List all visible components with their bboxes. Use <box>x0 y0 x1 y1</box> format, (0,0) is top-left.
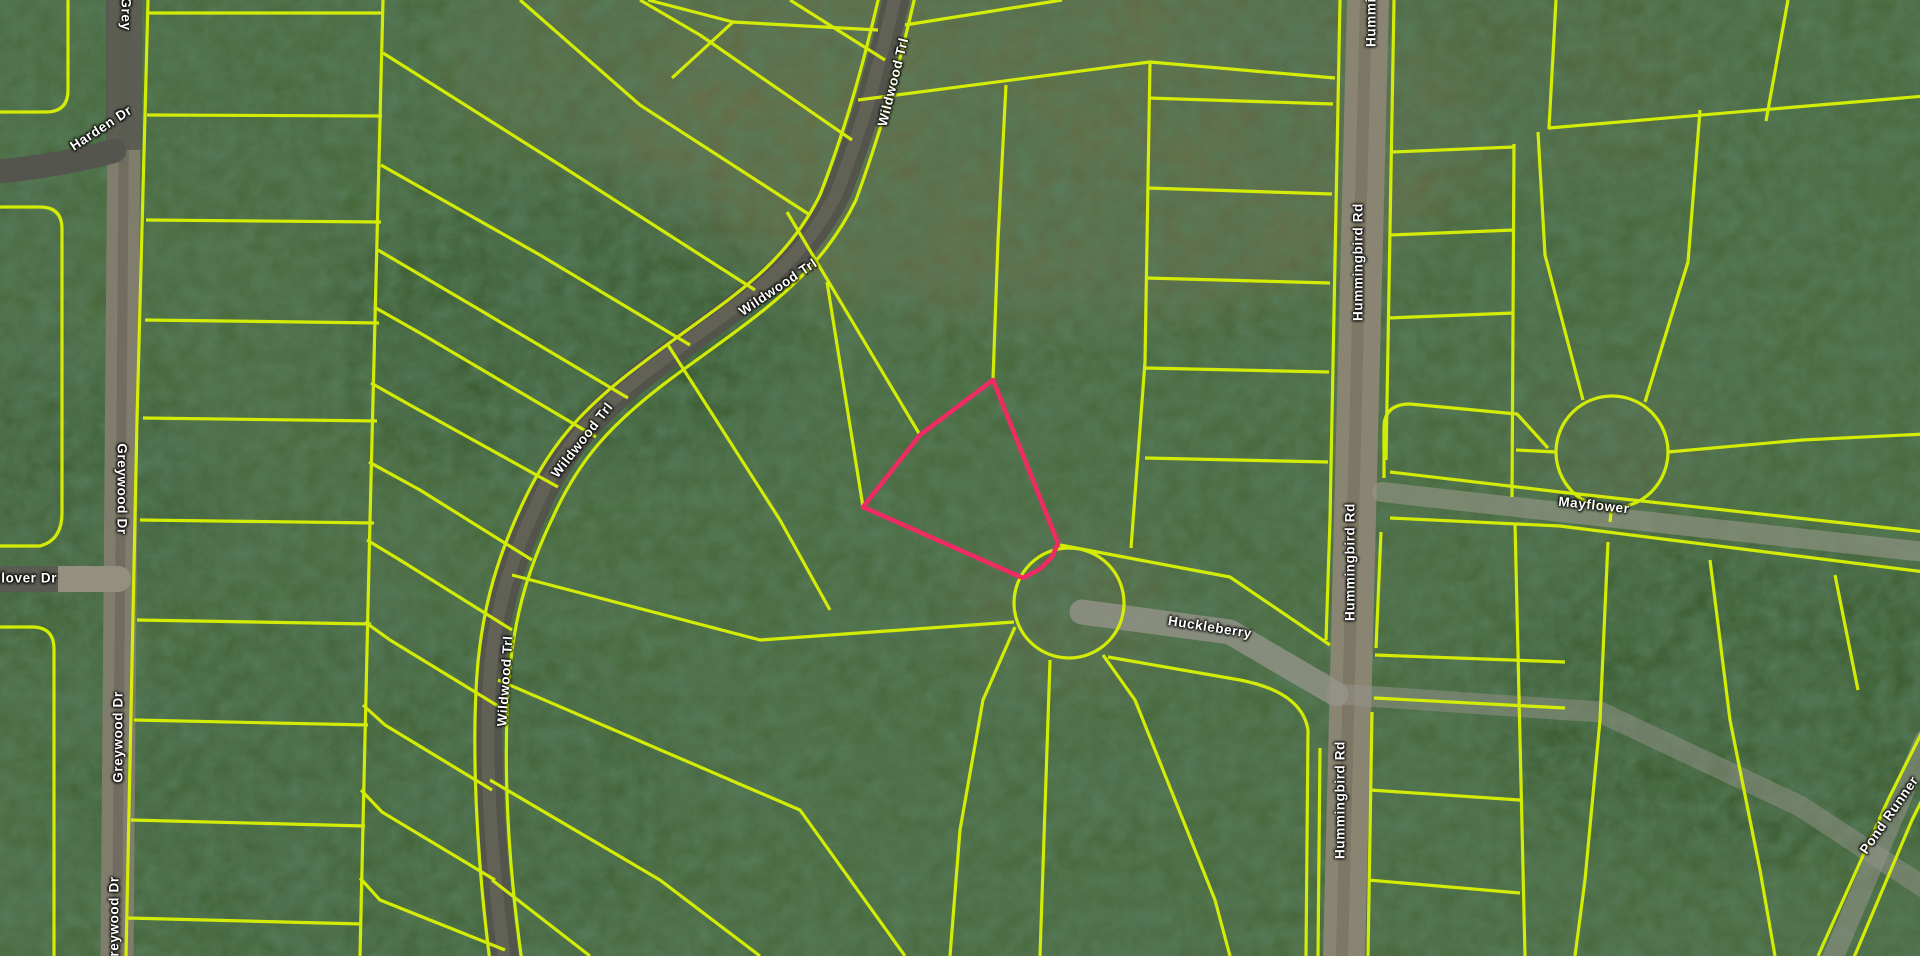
map-viewport[interactable]: GreyHarden DrGreywood DrGreywood DrGreyw… <box>0 0 1920 956</box>
map-canvas[interactable] <box>0 0 1920 956</box>
terrain <box>0 0 1920 956</box>
road-clover-asphalt <box>0 566 58 592</box>
road-greywood-asphalt-top <box>106 0 142 150</box>
